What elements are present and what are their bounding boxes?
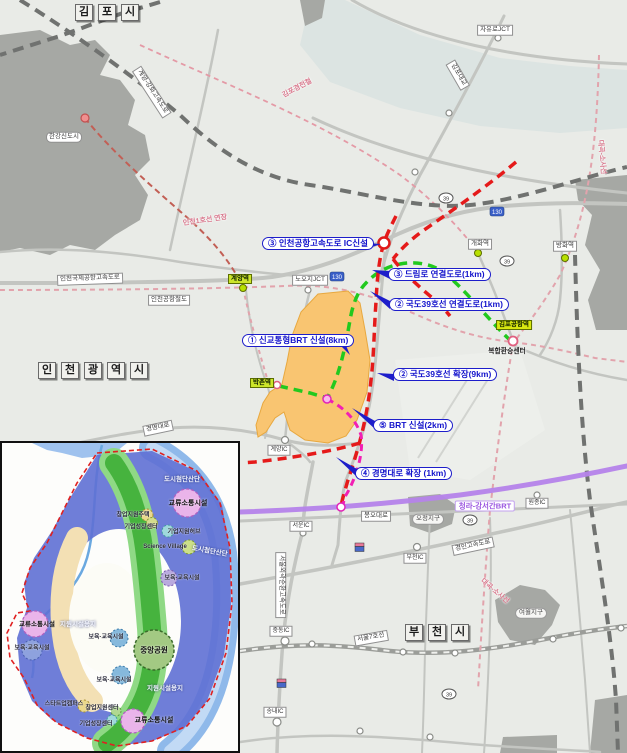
label-bongo-road: 봉오대로 (361, 511, 391, 522)
callout-brt-2km: ⑤ BRT 신설(2km) (373, 419, 453, 432)
inset-label-startup-center: 창업지원센터 (85, 703, 118, 712)
incheon1-terminus-dot (81, 114, 89, 122)
station-label-gyeyang: 계양역 (228, 274, 252, 284)
inset-label-biz-growth: 기업성장센터 (124, 522, 157, 531)
label-airport-rail: 인천공항철도 (148, 295, 190, 306)
label-ic-seoun: 서운IC (289, 521, 312, 532)
city-char: 인 (38, 362, 56, 379)
city-char: 부 (405, 624, 423, 641)
city-char: 시 (451, 624, 469, 641)
city-char: 천 (428, 624, 446, 641)
callout-gyeongmyeong-widening: ④ 경명대로 확장 (1km) (355, 467, 452, 480)
city-char: 김 (75, 4, 93, 21)
inset-label-support-site-left: 지원시설용지 (60, 618, 96, 628)
svg-text:130: 130 (332, 275, 343, 281)
svg-text:39: 39 (504, 260, 510, 266)
inset-label-childcare-1: 보육·교육시설 (164, 573, 199, 582)
svg-text:39: 39 (443, 197, 449, 203)
label-hangang-newtown: 한강신도시 (46, 132, 82, 143)
site-plan-inset: 도시첨단산단 교류소통시설 창업지원주택 기업성장센터 기업지원허브 Scien… (0, 441, 240, 753)
inset-label-startup-campus: 스타트업캠퍼스 (45, 699, 84, 708)
callout-route39-link: ② 국도39호선 연결도로(1km) (389, 298, 509, 311)
inset-label-exchange-top: 교류소통시설 (169, 498, 208, 508)
brt-purple-junction (337, 503, 345, 511)
inset-label-exchange-bottom: 교류소통시설 (135, 715, 174, 725)
inset-label-exchange-left: 교류소통시설 (19, 618, 55, 628)
transport-plan-map: 130 130 39 39 39 39 (0, 0, 627, 753)
city-label-incheon: 인 천 광 역 시 (38, 362, 148, 379)
inset-label-startup-housing: 창업지원주택 (116, 510, 149, 519)
callout-new-brt: ① 신교통형BRT 신설(8km) (242, 334, 354, 347)
inset-label-central-park: 중앙공원 (140, 645, 168, 656)
label-ic-songnae: 송내IC (263, 707, 286, 718)
city-char: 시 (121, 4, 139, 21)
station-bakchon-dot (274, 382, 281, 389)
svg-text:130: 130 (492, 210, 503, 216)
label-ic-wonjong: 원종IC (525, 498, 548, 509)
callout-route39-widening: ② 국도39호선 확장(9km) (393, 368, 497, 381)
label-outer-ring-expwy: 서울외곽순환고속도로 (276, 552, 287, 618)
station-label-gimpo-airport: 김포공항역 (496, 320, 532, 330)
label-ic-bucheon: 부천IC (403, 553, 426, 564)
city-label-gimpo: 김 포 시 (75, 4, 139, 21)
station-label-gaehwa: 개화역 (468, 239, 492, 250)
inset-label-science-village: Science Village (143, 544, 187, 550)
inset-label-childcare-3: 보육·교육시설 (88, 632, 123, 641)
callout-dream-ro-link: ③ 드림로 연결도로(1km) (388, 268, 491, 281)
station-label-banghwa: 방화역 (553, 241, 577, 252)
label-ic-gyeyang: 계양IC (267, 445, 290, 456)
label-cheongna-gangseo-brt: 청라-강서간BRT (455, 501, 515, 512)
station-gaehwa-dot (475, 250, 482, 257)
brt-node (323, 395, 331, 403)
inset-label-childcare-4: 보육·교육시설 (96, 675, 131, 684)
label-nooji-jct: 노오지JCT (292, 275, 328, 286)
city-char: 역 (107, 362, 125, 379)
inset-label-childcare-2: 보육·교육시설 (14, 643, 49, 652)
label-yeowol-district: 여월지구 (515, 608, 547, 619)
city-char: 광 (84, 362, 102, 379)
callout-airport-expwy-ic: ③ 인천공항고속도로 IC신설 (262, 237, 374, 250)
city-char: 천 (61, 362, 79, 379)
city-label-bucheon: 부 천 시 (405, 624, 469, 641)
station-gyeyang-dot (240, 285, 247, 292)
station-banghwa-dot (562, 255, 569, 262)
inset-svg (2, 443, 238, 751)
label-ojeong-district: 오정지구 (412, 514, 444, 525)
city-char: 시 (130, 362, 148, 379)
label-transfer-center: 복합환승센터 (488, 345, 526, 355)
svg-text:39: 39 (467, 519, 473, 525)
svg-text:39: 39 (446, 693, 452, 699)
inset-label-support-site-right: 지원시설용지 (147, 682, 183, 692)
city-char: 포 (98, 4, 116, 21)
inset-label-biz-growth-2: 기업성장센터 (79, 719, 112, 728)
label-ic-jungdong: 중동IC (269, 626, 292, 637)
station-label-bakchon: 박촌역 (250, 378, 274, 388)
new-ic-circle (379, 238, 390, 249)
inset-label-biz-hub: 기업지원허브 (167, 527, 200, 536)
inset-label-hightech-top: 도시첨단산단 (164, 473, 200, 483)
label-jayuro-jct: 자유로JCT (477, 25, 513, 36)
